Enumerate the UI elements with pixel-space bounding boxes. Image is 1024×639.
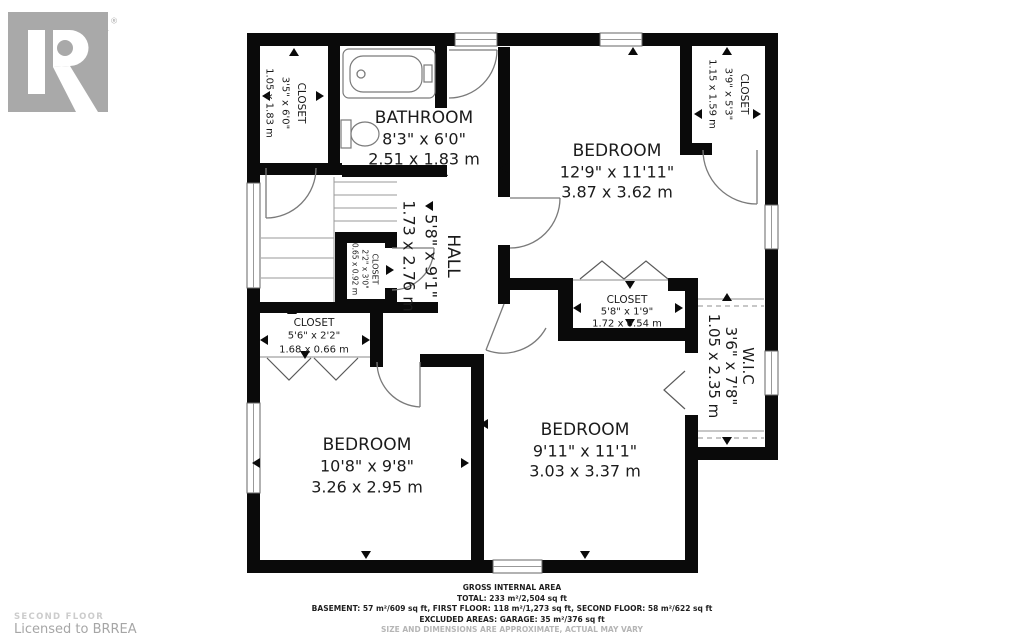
room-name: CLOSET: [371, 253, 380, 284]
bedroom-top-right-label: BEDROOM 12'9" x 11'11" 3.87 x 3.62 m: [560, 141, 674, 202]
room-name: CLOSET: [295, 83, 307, 124]
room-dim-metric: 1.72 x 0.54 m: [592, 319, 662, 330]
closet-bottom-left-label: CLOSET 5'6" x 2'2" 1.68 x 0.66 m: [279, 317, 349, 356]
license-text: Licensed to BRREA: [14, 622, 137, 637]
room-dim-imperial: 5'8" x 1'9": [601, 307, 653, 318]
room-dim-metric: 3.87 x 3.62 m: [561, 183, 673, 202]
room-dim-metric: 3.26 x 2.95 m: [311, 478, 423, 497]
floorplan-drawing: BATHROOM 8'3" x 6'0" 2.51 x 1.83 m BEDRO…: [0, 0, 1024, 639]
wic-label: W.I.C 3'6" x 7'8" 1.05 x 2.35 m: [705, 314, 757, 419]
room-dim-metric: 0.65 x 0.92 m: [351, 243, 360, 295]
room-dim-imperial: 9'11" x 11'1": [533, 442, 637, 461]
room-dim-metric: 1.68 x 0.66 m: [279, 345, 349, 356]
excluded-areas: EXCLUDED AREAS: GARAGE: 35 m²/376 sq ft: [192, 615, 832, 626]
area-summary: GROSS INTERNAL AREA TOTAL: 233 m²/2,504 …: [192, 583, 832, 636]
room-name: BEDROOM: [541, 420, 630, 440]
room-dim-imperial: 3'5" x 6'0": [280, 77, 291, 129]
room-dim-metric: 3.03 x 3.37 m: [529, 462, 641, 481]
bedroom-bottom-left-label: BEDROOM 10'8" x 9'8" 3.26 x 2.95 m: [311, 435, 423, 497]
room-name: HALL: [443, 234, 463, 278]
bathtub-icon: [343, 49, 435, 98]
bedroom-bottom-middle-label: BEDROOM 9'11" x 11'1" 3.03 x 3.37 m: [529, 420, 641, 481]
room-dim-imperial: 5'6" x 2'2": [288, 331, 340, 342]
closet-hall-label: CLOSET 2'2" x 3'0" 0.65 x 0.92 m: [351, 243, 380, 295]
hall-label: HALL 5'8" x 9'1" 1.73 x 2.76 m: [400, 200, 464, 312]
room-name: W.I.C: [739, 347, 757, 385]
room-dim-metric: 1.05 x 2.35 m: [705, 314, 723, 419]
disclaimer: SIZE AND DIMENSIONS ARE APPROXIMATE, ACT…: [192, 625, 832, 636]
closet-top-left-label: CLOSET 3'5" x 6'0" 1.05 x 1.83 m: [264, 68, 308, 138]
room-name: CLOSET: [738, 74, 750, 115]
closet-bottom-middle-label: CLOSET 5'8" x 1'9" 1.72 x 0.54 m: [592, 294, 662, 330]
credits: SECOND FLOOR Licensed to BRREA: [14, 612, 137, 637]
room-dim-imperial: 3'6" x 7'8": [722, 327, 740, 406]
room-name: CLOSET: [607, 294, 648, 306]
room-dim-imperial: 2'2" x 3'0": [361, 249, 370, 288]
room-dim-imperial: 3'9" x 5'3": [723, 68, 734, 120]
room-dim-imperial: 12'9" x 11'11": [560, 163, 674, 182]
room-name: BEDROOM: [573, 141, 662, 161]
room-name: CLOSET: [294, 317, 335, 329]
toilet-icon: [341, 120, 379, 148]
room-dim-imperial: 10'8" x 9'8": [320, 457, 414, 476]
room-dim-metric: 1.15 x 1.59 m: [707, 59, 718, 129]
room-dim-metric: 1.73 x 2.76 m: [400, 200, 419, 312]
floor-breakdown: BASEMENT: 57 m²/609 sq ft, FIRST FLOOR: …: [192, 604, 832, 615]
room-dim-metric: 1.05 x 1.83 m: [264, 68, 275, 138]
room-name: BATHROOM: [375, 108, 473, 128]
floorplan-page: REALTOR®: [0, 0, 1024, 639]
total-area: TOTAL: 233 m²/2,504 sq ft: [192, 594, 832, 605]
room-dim-imperial: 8'3" x 6'0": [382, 130, 466, 149]
bathroom-label: BATHROOM 8'3" x 6'0" 2.51 x 1.83 m: [368, 108, 480, 169]
room-dim-imperial: 5'8" x 9'1": [422, 214, 441, 298]
room-name: BEDROOM: [323, 435, 412, 455]
closet-top-right-label: CLOSET 3'9" x 5'3" 1.15 x 1.59 m: [707, 59, 751, 129]
gross-internal-area-title: GROSS INTERNAL AREA: [192, 583, 832, 594]
floor-label: SECOND FLOOR: [14, 612, 137, 622]
room-dim-metric: 2.51 x 1.83 m: [368, 150, 480, 169]
